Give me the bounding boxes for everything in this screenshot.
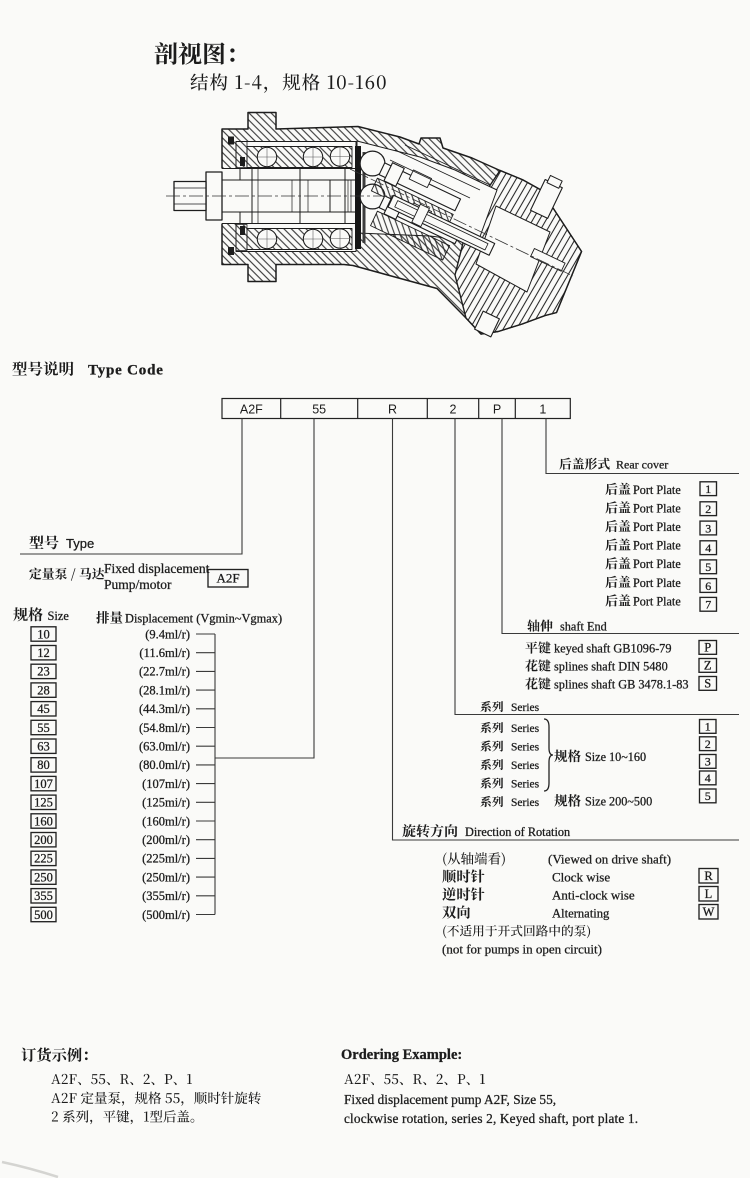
svg-text:1: 1 [539,403,546,417]
svg-text:Z: Z [704,659,712,673]
svg-text:(54.8ml/r): (54.8ml/r) [139,721,190,735]
svg-text:splines shaft DIN 5480: splines shaft DIN 5480 [554,660,668,674]
svg-text:45: 45 [37,702,50,716]
svg-text:(22.7ml/r): (22.7ml/r) [139,665,190,679]
svg-text:2: 2 [705,737,711,751]
svg-text:Type: Type [66,536,94,551]
svg-text:Series: Series [511,779,540,791]
svg-text:Series: Series [511,702,540,714]
svg-text:Anti-clock wise: Anti-clock wise [552,888,635,903]
svg-text:Series: Series [511,760,540,772]
svg-text:Series: Series [511,723,540,735]
svg-text:A2F: A2F [240,403,263,417]
svg-text:12: 12 [37,646,50,660]
svg-text:Port Plate: Port Plate [633,594,681,608]
svg-text:250: 250 [34,870,53,884]
svg-text:clockwise rotation, series 2,: clockwise rotation, series 2, Keyed shaf… [344,1111,638,1126]
svg-text:6: 6 [705,579,711,593]
svg-text:2: 2 [705,502,711,516]
svg-text:keyed shaft GB1096-79: keyed shaft GB1096-79 [554,642,671,656]
svg-text:3: 3 [705,755,711,769]
svg-text:200: 200 [34,833,53,847]
svg-text:Fixed displacement pump A2F, S: Fixed displacement pump A2F, Size 55, [344,1092,556,1107]
svg-text:Port Plate: Port Plate [633,520,681,534]
svg-text:Displacement (Vgmin~Vgmax): Displacement (Vgmin~Vgmax) [125,612,282,626]
svg-text:(160ml/r): (160ml/r) [142,814,190,828]
svg-text:P: P [493,403,501,417]
svg-text:4: 4 [705,541,711,555]
svg-text:splines shaft GB 3478.1-83: splines shaft GB 3478.1-83 [554,678,689,692]
svg-text:1: 1 [705,482,711,496]
svg-text:W: W [703,905,715,919]
svg-text:Size: Size [48,609,70,623]
svg-text:Pump/motor: Pump/motor [104,577,172,592]
svg-text:(500ml/r): (500ml/r) [142,908,190,922]
svg-text:1: 1 [705,720,711,734]
svg-text:(Viewed on drive shaft): (Viewed on drive shaft) [548,852,671,867]
svg-text:(125mi/r): (125mi/r) [142,796,190,810]
svg-text:Port Plate: Port Plate [633,483,681,497]
svg-text:A2F: A2F [216,571,239,586]
svg-text:(107ml/r): (107ml/r) [142,777,190,791]
svg-text:55: 55 [37,721,50,735]
svg-text:Ordering Example:: Ordering Example: [341,1047,462,1063]
svg-text:5: 5 [705,789,711,803]
svg-text:(250ml/r): (250ml/r) [142,870,190,884]
svg-text:Port Plate: Port Plate [633,501,681,515]
svg-text:(80.0ml/r): (80.0ml/r) [139,758,190,772]
svg-text:P: P [704,641,711,655]
svg-text:Fixed displacement: Fixed displacement [104,561,210,576]
svg-text:3: 3 [705,521,711,535]
svg-text:10: 10 [37,627,50,641]
svg-text:shaft End: shaft End [560,620,607,634]
svg-text:4: 4 [705,771,711,785]
svg-text:23: 23 [37,665,50,679]
svg-text:(9.4ml/r): (9.4ml/r) [145,627,190,641]
svg-text:R: R [704,869,713,883]
svg-text:Direction of Rotation: Direction of Rotation [465,825,570,839]
svg-text:Series: Series [511,797,540,809]
svg-text:(11.6ml/r): (11.6ml/r) [139,646,190,660]
svg-text:Series: Series [511,742,540,754]
svg-text:Port Plate: Port Plate [633,576,681,590]
svg-text:Rear cover: Rear cover [616,458,668,472]
svg-text:L: L [705,887,713,901]
svg-text:160: 160 [34,814,53,828]
svg-text:R: R [388,403,397,417]
svg-text:(63.0ml/r): (63.0ml/r) [139,740,190,754]
svg-text:355: 355 [34,889,53,903]
svg-text:125: 125 [34,796,53,810]
svg-text:Alternating: Alternating [552,907,610,921]
svg-text:(225ml/r): (225ml/r) [142,852,190,866]
svg-text:Type Code: Type Code [88,363,164,379]
svg-text:Clock wise: Clock wise [552,870,610,885]
svg-text:55: 55 [312,403,326,417]
svg-text:Port Plate: Port Plate [633,557,681,571]
svg-text:28: 28 [37,683,50,697]
svg-text:(355ml/r): (355ml/r) [142,889,190,903]
svg-text:80: 80 [37,758,50,772]
svg-text:2: 2 [450,403,457,417]
svg-text:Size 10~160: Size 10~160 [585,750,646,764]
svg-text:500: 500 [34,908,53,922]
svg-text:Port Plate: Port Plate [633,539,681,553]
svg-text:7: 7 [705,598,711,612]
svg-text:(28.1ml/r): (28.1ml/r) [139,683,190,697]
svg-text:5: 5 [705,560,711,574]
svg-text:(not for pumps in open circuit: (not for pumps in open circuit) [442,942,602,957]
svg-text:225: 225 [34,852,53,866]
svg-text:(44.3ml/r): (44.3ml/r) [139,702,190,716]
svg-text:(200ml/r): (200ml/r) [142,833,190,847]
svg-text:107: 107 [34,777,53,791]
svg-text:63: 63 [37,740,50,754]
svg-text:Size 200~500: Size 200~500 [585,795,652,809]
svg-text:S: S [704,677,711,691]
